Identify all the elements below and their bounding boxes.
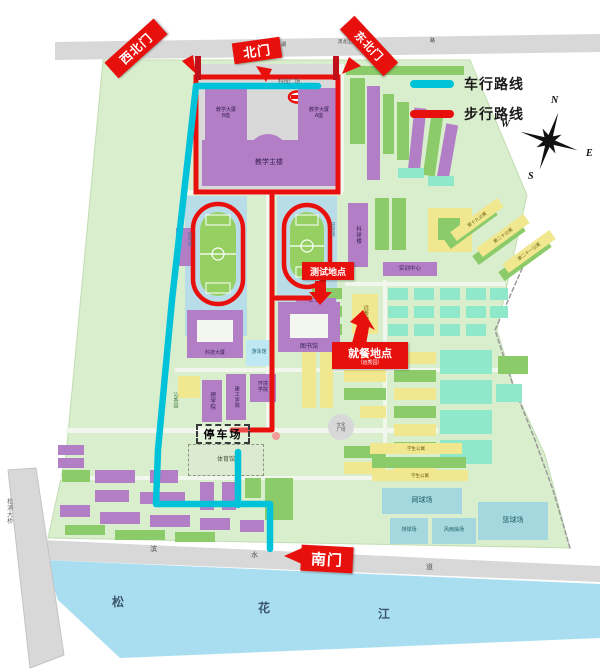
map-label: 沁香园 xyxy=(172,392,178,409)
map-label: 江 xyxy=(378,608,390,621)
compass-letter-n: N xyxy=(551,95,558,106)
dining-location-label: 就餐地点 xyxy=(348,345,392,361)
annotation-test-location: 测试地点 xyxy=(302,262,354,280)
map-label: 田径场 xyxy=(187,232,192,247)
vehicle-route-label: 车行路线 xyxy=(464,74,524,94)
vehicle-route-swatch xyxy=(410,80,454,88)
parking-lot-label: 停车场 xyxy=(196,424,250,444)
campus-map: 教学大厦 B座教学大厦 A座教学主楼综合楼图书馆科技大厦游泳馆理学院建工学院环境… xyxy=(0,0,600,671)
map-label: 道 xyxy=(426,564,433,572)
map-label: 松浦大桥 xyxy=(5,498,12,524)
walking-route-label: 步行路线 xyxy=(464,104,524,124)
map-label: 松 xyxy=(112,596,124,609)
test-location-label: 测试地点 xyxy=(310,265,346,278)
compass-letter-w: W xyxy=(501,119,510,130)
annotation-dining-location: 就餐地点 （远秀园） xyxy=(332,342,408,369)
walking-route-swatch xyxy=(410,110,454,118)
compass-letter-e: E xyxy=(586,148,593,159)
map-label: 田径场 xyxy=(330,222,335,237)
map-label: 水 xyxy=(251,552,258,560)
map-label: 滨 xyxy=(150,546,157,554)
compass-letter-s: S xyxy=(528,171,534,182)
map-label: 湖 xyxy=(281,43,286,49)
map-label: 花 xyxy=(258,602,270,615)
gate-label-south: 南门 xyxy=(300,545,353,574)
map-label: 科技广场 xyxy=(278,79,300,85)
legend-vehicle-row: 车行路线 xyxy=(410,74,524,94)
map-label: 路 xyxy=(430,39,435,45)
dining-location-sublabel: （远秀园） xyxy=(357,361,382,366)
